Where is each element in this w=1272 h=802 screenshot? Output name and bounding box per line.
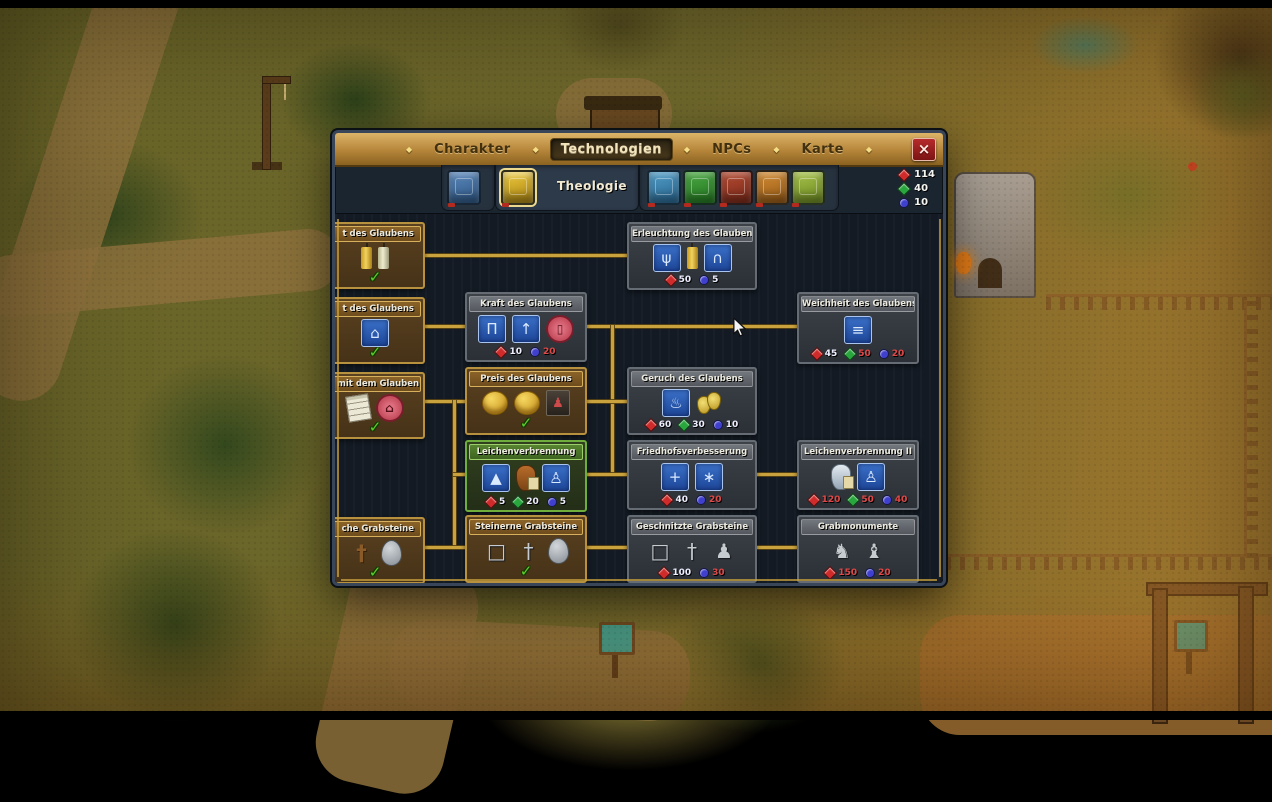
cost-value: 20 xyxy=(878,568,891,578)
mouse-cursor xyxy=(732,318,750,338)
tech-node-geruch-des-glaubens[interactable]: Geruch des Glaubens♨603010 xyxy=(627,367,757,435)
cost-gem-icon xyxy=(511,494,525,508)
stoneoval-icon xyxy=(381,540,402,566)
tech-node-icons: ⌂ xyxy=(335,318,423,347)
cost-gem-icon xyxy=(696,495,706,505)
blue-icon: ⌂ xyxy=(361,319,389,347)
gallows-rope xyxy=(284,84,286,100)
cost-b: 30 xyxy=(699,568,725,578)
candle-gold-icon xyxy=(687,247,698,269)
resource-value: 114 xyxy=(914,169,935,180)
cost-gem-icon xyxy=(547,497,557,507)
pinkc-icon: ▯ xyxy=(546,315,574,343)
game-screen: { "window": {"game": "Graveyard Keeper",… xyxy=(0,0,1272,720)
cost-gem-icon xyxy=(484,494,498,508)
tech-node-geschnitzte-grabsteine[interactable]: Geschnitzte Grabsteine□†♟10030 xyxy=(627,515,757,583)
stone-icon: † xyxy=(679,538,705,564)
candle-pale-icon xyxy=(378,247,389,269)
tech-node-title: Friedhofsverbesserung xyxy=(631,444,753,460)
tech-node-church-of-faith[interactable]: t des Glaubens⌂✓ xyxy=(335,297,425,364)
cost-value: 30 xyxy=(692,420,705,430)
candle-gold-icon xyxy=(361,247,372,269)
cost-value: 120 xyxy=(822,495,841,505)
urn-white-icon xyxy=(831,464,851,490)
tech-node-icons: ♨ xyxy=(629,388,755,418)
category-book-smithing[interactable] xyxy=(719,170,753,205)
donation-icon: ♟ xyxy=(546,390,570,416)
cost-gem-icon xyxy=(843,346,857,360)
cost-value: 20 xyxy=(526,497,539,507)
cost-value: 60 xyxy=(659,420,672,430)
tech-node-simple-gravestones[interactable]: che Grabsteine†✓ xyxy=(335,517,425,583)
tech-node-icons: ♙ xyxy=(799,461,917,493)
bells-icon xyxy=(696,390,722,416)
tech-node-preis-des-glaubens[interactable]: Preis des Glaubens♟✓ xyxy=(465,367,587,435)
pinkc-icon: ⌂ xyxy=(376,394,404,422)
furnace-opening xyxy=(978,258,1002,288)
tech-node-footer: 1020 xyxy=(467,345,585,358)
timber-post xyxy=(1238,586,1254,724)
cost-r: 40 xyxy=(662,495,688,505)
pond xyxy=(1010,5,1160,85)
cost-b: 20 xyxy=(530,347,556,357)
resource-value: 10 xyxy=(914,197,928,208)
tech-node-icons: ♞♝ xyxy=(799,536,917,566)
stone-icon: † xyxy=(516,538,542,564)
tech-node-footer: 15020 xyxy=(799,566,917,579)
tech-node-title: Grabmonumente xyxy=(801,519,915,535)
tech-node-title: t mit dem Glauben xyxy=(335,376,421,392)
main-tab-bar: ◆Charakter◆Technologien◆NPCs◆Karte◆ xyxy=(335,133,943,167)
resource-value: 40 xyxy=(914,183,928,194)
cost-gem-icon xyxy=(699,568,709,578)
cost-gem-icon xyxy=(530,347,540,357)
letterbox-bottom xyxy=(0,711,1272,720)
cost-gem-icon xyxy=(644,417,658,431)
completed-check-icon: ✓ xyxy=(369,418,382,436)
tech-node-title: t des Glaubens xyxy=(335,301,421,317)
tech-node-title: Leichenverbrennung xyxy=(469,444,583,460)
cost-value: 10 xyxy=(509,347,522,357)
stoneoval-icon xyxy=(548,538,569,564)
tech-node-footer: 4020 xyxy=(629,493,755,506)
cost-gem-icon xyxy=(713,420,723,430)
tech-node-icons: ⌂ xyxy=(335,393,423,422)
cost-value: 5 xyxy=(560,497,566,507)
cost-value: 5 xyxy=(499,497,505,507)
cost-value: 45 xyxy=(825,349,838,359)
notice-board xyxy=(1174,620,1208,652)
cost-value: 100 xyxy=(672,568,691,578)
letterbox-top xyxy=(0,0,1272,8)
cost-r: 45 xyxy=(812,349,838,359)
blue-icon: + xyxy=(661,463,689,491)
resource-gem-icon xyxy=(899,198,909,208)
tech-node-weichheit-des-glaubens[interactable]: Weichheit des Glaubens≡455020 xyxy=(797,292,919,364)
tab-charakter[interactable]: Charakter xyxy=(424,139,520,160)
tech-node-candles-of-faith[interactable]: t des Glaubens✓ xyxy=(335,222,425,289)
cost-r: 150 xyxy=(825,568,857,578)
tech-node-friedhofsverbesserung[interactable]: Friedhofsverbesserung+∗4020 xyxy=(627,440,757,510)
tech-node-kraft-des-glaubens[interactable]: Kraft des GlaubensΠ↑▯1020 xyxy=(465,292,587,362)
cost-gem-icon xyxy=(657,565,671,579)
blue-icon: ↑ xyxy=(512,315,540,343)
category-book-writing[interactable] xyxy=(647,170,681,205)
cost-gem-icon xyxy=(882,495,892,505)
stone-icon: ♝ xyxy=(861,538,887,564)
tech-node-icons: ψ∩ xyxy=(629,243,755,273)
diamond-bullet: ◆ xyxy=(773,145,779,154)
cost-b: 5 xyxy=(699,275,718,285)
woodcross-icon: † xyxy=(349,540,375,566)
cost-r: 10 xyxy=(496,347,522,357)
connector-line xyxy=(425,325,465,328)
tech-node-grabmonumente[interactable]: Grabmonumente♞♝15020 xyxy=(797,515,919,583)
tech-node-footer: ✓ xyxy=(335,347,423,360)
blue-icon: ♙ xyxy=(857,463,885,491)
cost-value: 150 xyxy=(838,568,857,578)
cost-g: 20 xyxy=(513,497,539,507)
panel-trim xyxy=(337,219,339,577)
cost-b: 5 xyxy=(547,497,566,507)
stone-icon: □ xyxy=(647,538,673,564)
cost-gem-icon xyxy=(810,346,824,360)
notice-board xyxy=(599,622,635,655)
connector-line xyxy=(587,546,627,549)
tech-node-title: Preis des Glaubens xyxy=(469,371,583,387)
scroll-icon xyxy=(345,393,372,422)
category-book-theology[interactable] xyxy=(501,170,535,205)
connector-line xyxy=(587,473,627,476)
tech-node-title: Steinerne Grabsteine xyxy=(469,519,583,535)
stone-icon: □ xyxy=(484,538,510,564)
resource-r: 114 xyxy=(899,168,935,181)
tech-node-icons: □†♟ xyxy=(629,536,755,566)
cost-g: 50 xyxy=(848,495,874,505)
cost-value: 50 xyxy=(861,495,874,505)
cost-gem-icon xyxy=(865,568,875,578)
cost-value: 30 xyxy=(712,568,725,578)
tech-node-title: Geruch des Glaubens xyxy=(631,371,753,387)
furnace-glow xyxy=(956,252,971,274)
tech-node-footer: 603010 xyxy=(629,418,755,431)
tree-canopy xyxy=(530,0,710,90)
stone-icon: ♞ xyxy=(829,538,855,564)
connector-line xyxy=(425,254,627,257)
fence xyxy=(946,554,1272,570)
tech-category-bar: Theologie 1144010 xyxy=(335,165,943,213)
connector-line xyxy=(587,325,797,328)
tech-points-counter: 1144010 xyxy=(899,168,935,209)
diamond-bullet: ◆ xyxy=(866,145,872,154)
tech-node-footer: ✓ xyxy=(335,422,423,435)
completed-check-icon: ✓ xyxy=(369,268,382,286)
tech-node-title: Erleuchtung des Glaubens xyxy=(631,226,753,242)
berry-bush-dot xyxy=(1188,162,1197,171)
cost-g: 50 xyxy=(845,349,871,359)
fence xyxy=(1244,300,1258,558)
tech-tree: t des Glaubens✓t des Glaubens⌂✓t mit dem… xyxy=(335,213,943,583)
cost-gem-icon xyxy=(677,417,691,431)
coin-icon xyxy=(482,391,508,415)
cost-r: 60 xyxy=(646,420,672,430)
cost-gem-icon xyxy=(806,492,820,506)
blue-icon: ∩ xyxy=(704,244,732,272)
diamond-bullet: ◆ xyxy=(406,145,412,154)
panel-trim xyxy=(341,579,937,581)
tech-node-title: Leichenverbrennung II xyxy=(801,444,915,460)
technology-panel: ◆Charakter◆Technologien◆NPCs◆Karte◆ × Th… xyxy=(332,130,946,586)
resource-g: 40 xyxy=(899,182,935,195)
cost-gem-icon xyxy=(699,275,709,285)
tab-technologien[interactable]: Technologien xyxy=(551,139,672,160)
tech-node-work-with-faith[interactable]: t mit dem Glauben⌂✓ xyxy=(335,372,425,439)
urn-brown-icon xyxy=(516,465,536,491)
cost-value: 10 xyxy=(726,420,739,430)
connector-line xyxy=(587,400,627,403)
cost-gem-icon xyxy=(846,492,860,506)
tech-node-footer: ✓ xyxy=(467,418,585,431)
connector-line xyxy=(425,546,465,549)
resource-gem-icon xyxy=(897,181,911,195)
tech-node-icons: ▲♙ xyxy=(467,461,585,495)
cost-gem-icon xyxy=(494,344,508,358)
cost-r: 50 xyxy=(666,275,692,285)
timber-post xyxy=(1152,588,1168,724)
blue-icon: Π xyxy=(478,315,506,343)
cost-value: 20 xyxy=(892,349,905,359)
connector-line xyxy=(757,546,797,549)
tech-node-footer: ✓ xyxy=(335,272,423,285)
cost-gem-icon xyxy=(823,565,837,579)
tech-node-footer: 5205 xyxy=(467,495,585,508)
blue-icon: ψ xyxy=(653,244,681,272)
well-roof xyxy=(584,96,662,110)
tech-node-title: Kraft des Glaubens xyxy=(469,296,583,312)
tech-node-icons: □† xyxy=(467,536,585,566)
connector-line xyxy=(757,473,797,476)
cost-r: 5 xyxy=(486,497,505,507)
gallows-post xyxy=(262,76,271,170)
tech-node-erleuchtung-des-glaubens[interactable]: Erleuchtung des Glaubensψ∩505 xyxy=(627,222,757,290)
cost-b: 20 xyxy=(865,568,891,578)
stone-icon: ♟ xyxy=(711,538,737,564)
cost-b: 10 xyxy=(713,420,739,430)
cost-value: 40 xyxy=(895,495,908,505)
connector-line xyxy=(453,473,465,476)
tech-node-footer: 1205040 xyxy=(799,493,917,506)
selected-category-label: Theologie xyxy=(547,179,637,193)
tech-node-steinerne-grabsteine[interactable]: Steinerne Grabsteine□†✓ xyxy=(465,515,587,583)
category-book-alchemy[interactable] xyxy=(791,170,825,205)
tech-node-icons: ♟ xyxy=(467,388,585,418)
resource-gem-icon xyxy=(897,167,911,181)
tech-node-title: t des Glaubens xyxy=(335,226,421,242)
tech-node-title: che Grabsteine xyxy=(335,521,421,537)
tech-node-icons: ≡ xyxy=(799,313,917,347)
resource-b: 10 xyxy=(899,196,935,209)
coin-icon xyxy=(514,391,540,415)
blue-icon: ♨ xyxy=(662,389,690,417)
cost-value: 5 xyxy=(712,275,718,285)
cost-gem-icon xyxy=(660,492,674,506)
category-book-anatomy[interactable] xyxy=(447,170,481,205)
cost-b: 20 xyxy=(696,495,722,505)
tech-node-footer: 455020 xyxy=(799,347,917,360)
category-book-nature[interactable] xyxy=(683,170,717,205)
dirt-road xyxy=(388,617,692,723)
category-book-building[interactable] xyxy=(755,170,789,205)
cost-value: 50 xyxy=(858,349,871,359)
diamond-bullet: ◆ xyxy=(684,145,690,154)
tech-node-icons: +∗ xyxy=(629,461,755,493)
cost-value: 50 xyxy=(679,275,692,285)
blue-icon: ∗ xyxy=(695,463,723,491)
diamond-bullet: ◆ xyxy=(533,145,539,154)
gallows-beam xyxy=(262,76,291,84)
connector-line xyxy=(425,400,465,403)
fence xyxy=(1046,294,1272,310)
tech-node-icons xyxy=(335,243,423,272)
tech-node-icons: Π↑▯ xyxy=(467,313,585,345)
cost-value: 40 xyxy=(675,495,688,505)
completed-check-icon: ✓ xyxy=(520,562,533,580)
tech-node-footer: 505 xyxy=(629,273,755,286)
blue-icon: ♙ xyxy=(542,464,570,492)
cost-gem-icon xyxy=(879,349,889,359)
tech-node-title: Weichheit des Glaubens xyxy=(801,296,915,312)
cost-b: 40 xyxy=(882,495,908,505)
cost-gem-icon xyxy=(664,272,678,286)
tech-node-footer: 10030 xyxy=(629,566,755,579)
blue-icon: ≡ xyxy=(844,316,872,344)
cost-b: 20 xyxy=(879,349,905,359)
cost-value: 20 xyxy=(709,495,722,505)
cost-value: 20 xyxy=(543,347,556,357)
cost-r: 120 xyxy=(809,495,841,505)
cost-g: 30 xyxy=(679,420,705,430)
blue-icon: ▲ xyxy=(482,464,510,492)
panel-trim xyxy=(939,219,941,577)
completed-check-icon: ✓ xyxy=(520,414,533,432)
tech-node-leichenverbrennung-2[interactable]: Leichenverbrennung II♙1205040 xyxy=(797,440,919,510)
tech-node-footer: ✓ xyxy=(467,566,585,579)
tech-node-leichenverbrennung[interactable]: Leichenverbrennung▲♙5205 xyxy=(465,440,587,512)
tab-npcs[interactable]: NPCs xyxy=(702,139,761,160)
cost-r: 100 xyxy=(659,568,691,578)
tab-karte[interactable]: Karte xyxy=(792,139,854,160)
close-icon[interactable]: × xyxy=(912,138,936,161)
tech-node-title: Geschnitzte Grabsteine xyxy=(631,519,753,535)
